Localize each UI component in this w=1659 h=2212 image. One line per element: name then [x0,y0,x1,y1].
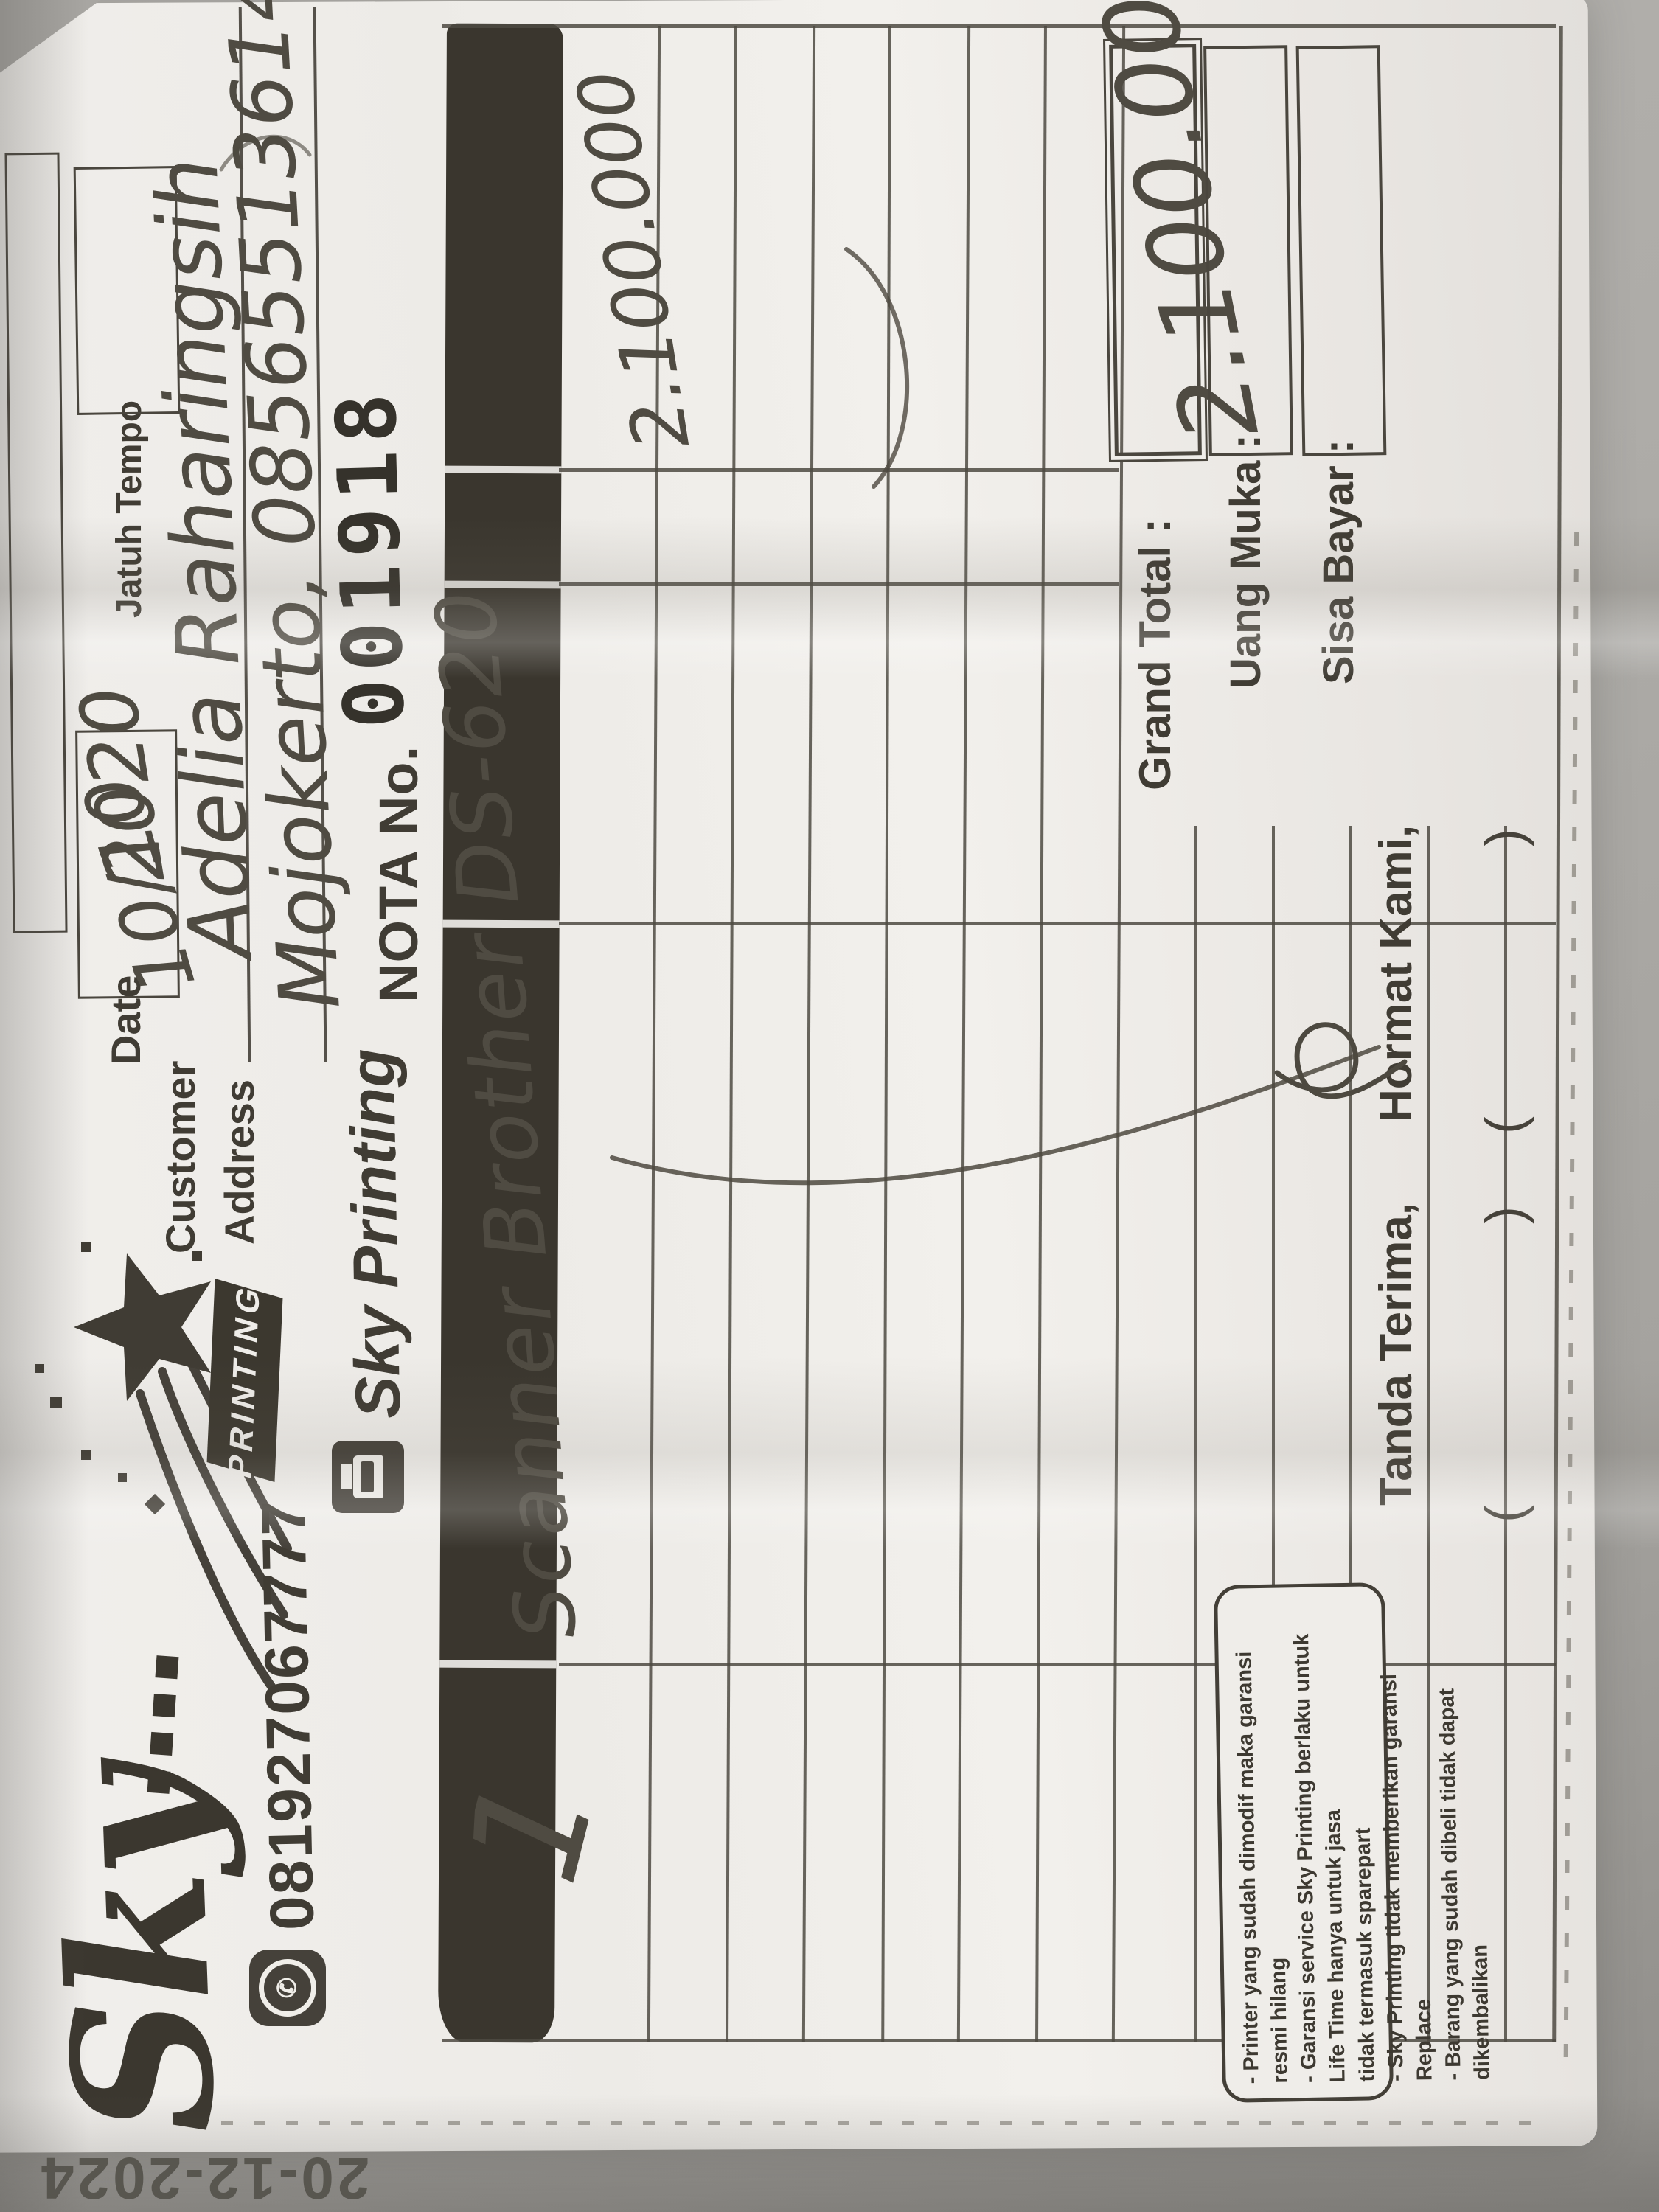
terms-line: - Garansi service Sky Printing berlaku u… [1287,1601,1354,2083]
terms-line: - Sky Printing tidak memberikan garansi … [1374,1600,1440,2081]
terms-box: - Printer yang sudah dimodif maka garans… [1214,1582,1394,2103]
terms-line: - Barang yang sudah dibeli tidak dapat d… [1431,1599,1498,2081]
receipt-photo: Sky PRINTING ✆ 081927067777 Sky Printing… [0,0,1659,2212]
rotated-receipt: Sky PRINTING ✆ 081927067777 Sky Printing… [0,0,1659,2212]
terms-line: - Printer yang sudah dimodif maka garans… [1229,1602,1295,2084]
photo-date-stamp: 20-12-2024 [38,2144,369,2212]
